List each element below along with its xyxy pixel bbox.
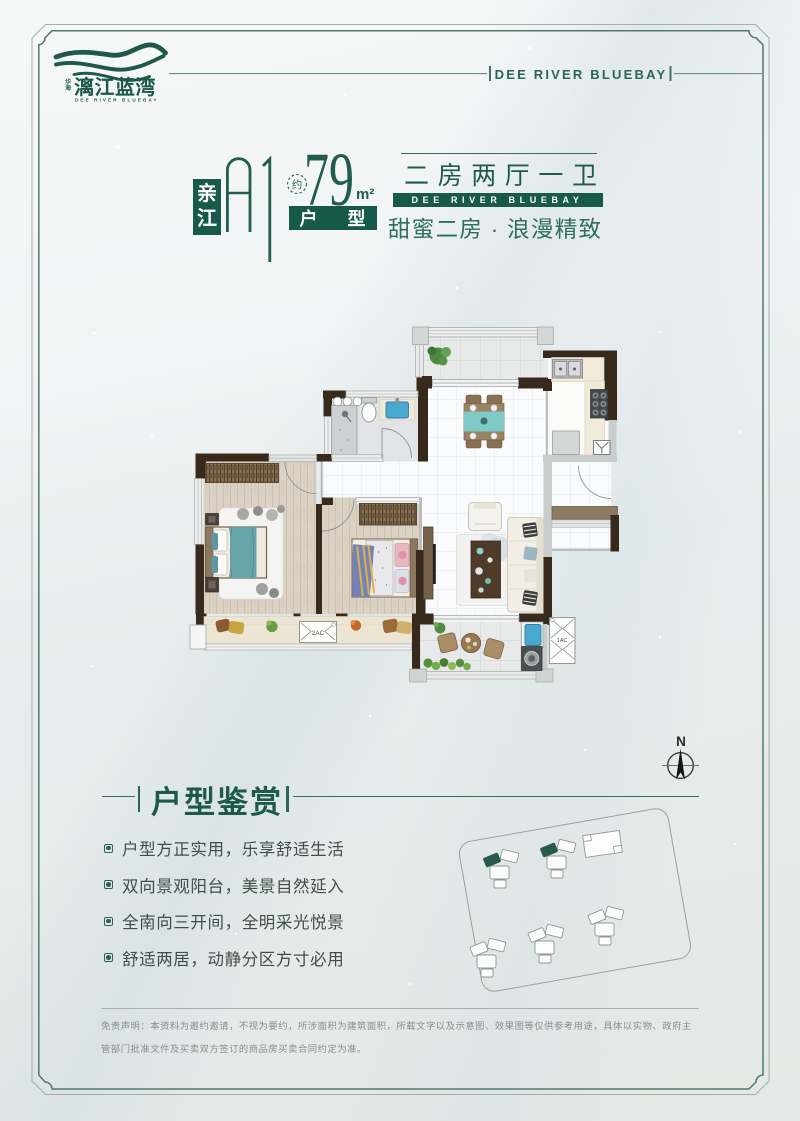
svg-text:2AC: 2AC: [312, 630, 325, 637]
svg-text:1AC: 1AC: [557, 638, 568, 644]
svg-text:N: N: [676, 734, 686, 749]
